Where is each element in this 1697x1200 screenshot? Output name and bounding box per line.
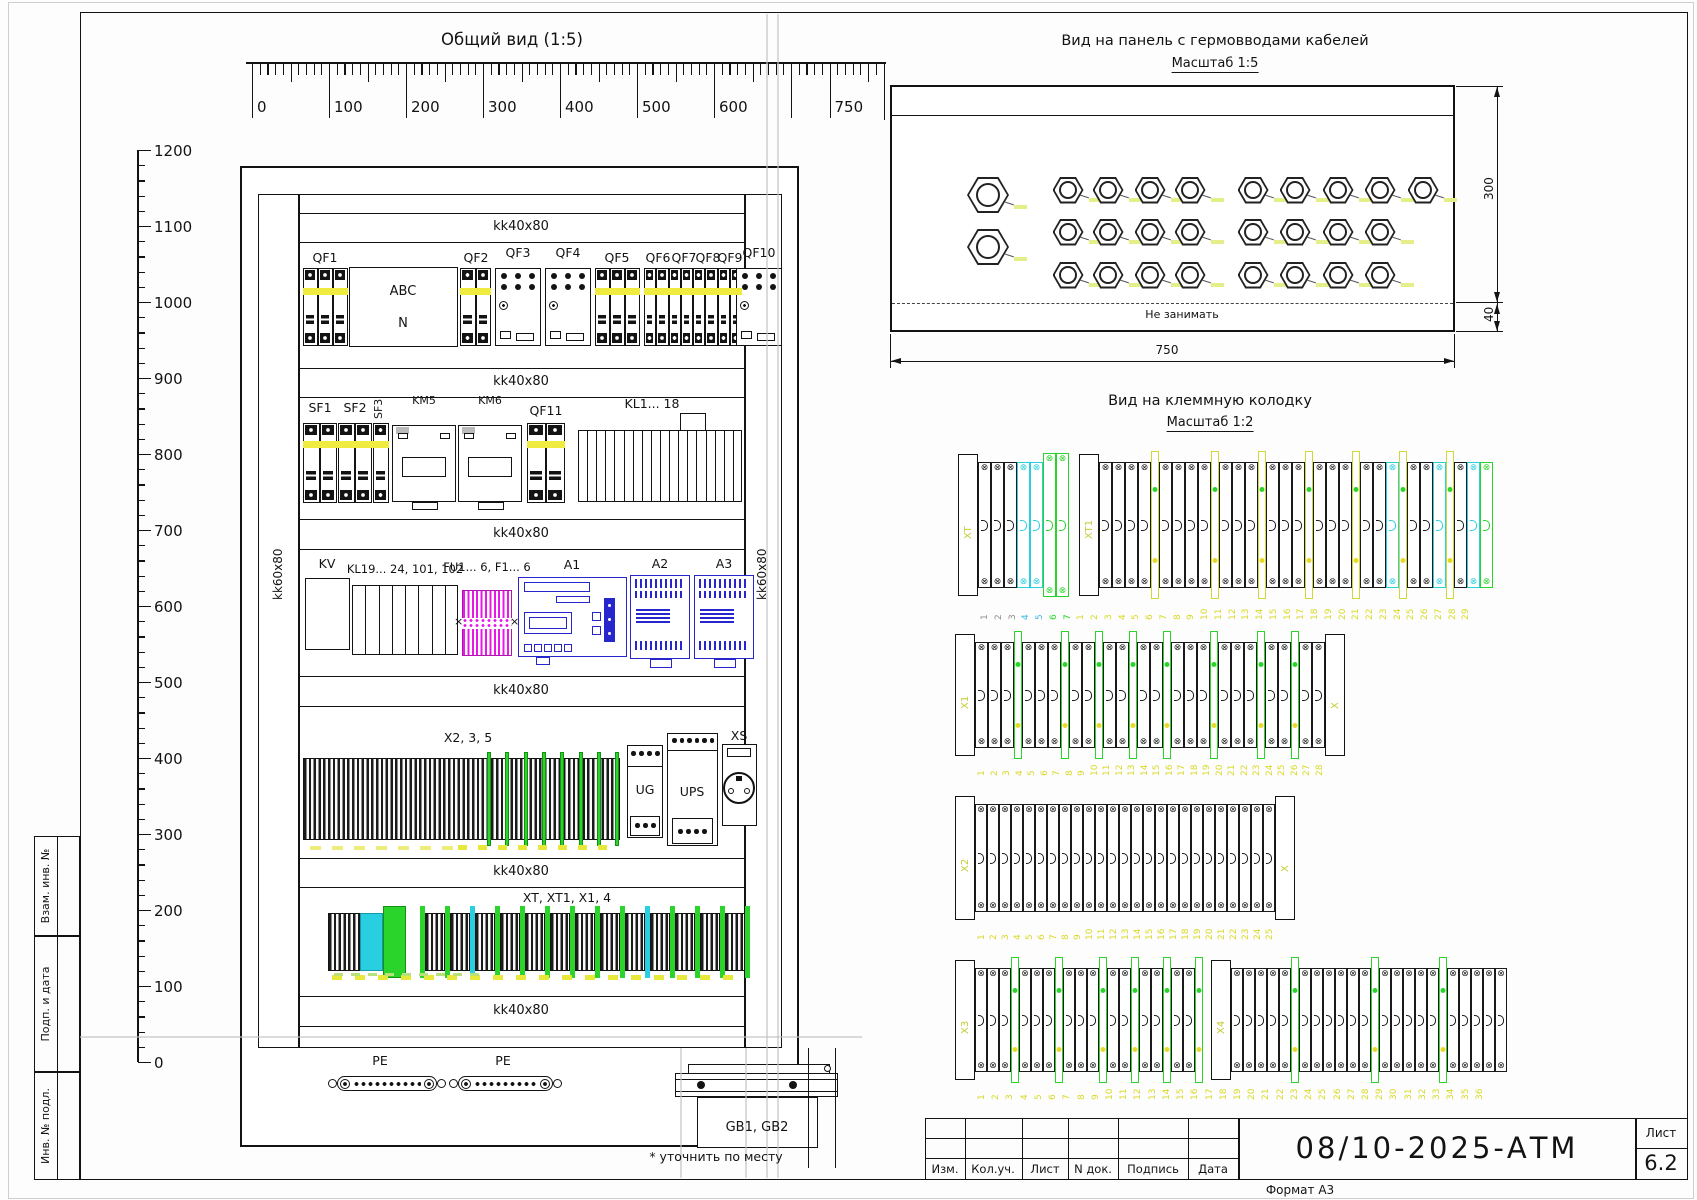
tb-col-data: Дата (1198, 1162, 1228, 1176)
keep-out-label: Не занимать (1145, 308, 1218, 321)
h-ruler-number: 400 (565, 98, 594, 116)
channel-label: kk40x80 (493, 1003, 549, 1018)
device-label-ug: UG (636, 782, 655, 797)
v-ruler-number: 0 (154, 1054, 164, 1072)
device-label-fu: FU1... 6, F1... 6 (443, 560, 530, 574)
fold-mark (80, 1036, 862, 1038)
sheet-word: Лист (1646, 1126, 1676, 1140)
v-ruler-number: 600 (154, 598, 183, 616)
dim-flange-label: 40 (1482, 307, 1496, 322)
channel-label: kk40x80 (493, 374, 549, 389)
gland-view-scale: Масштаб 1:5 (1172, 56, 1259, 73)
phase-marking-stripe (644, 288, 742, 295)
drawing-sheet: Взам. инв. № Подп. и дата Инв. № подл. О… (0, 0, 1697, 1200)
device-label-sf1: SF1 (308, 400, 331, 415)
h-ruler-number: 100 (334, 98, 363, 116)
fuse-end-mark: × (454, 615, 463, 628)
device-label-qf2: QF2 (464, 250, 489, 265)
channel-label-vertical: kk60x80 (755, 548, 769, 600)
sheet-number: 6.2 (1644, 1151, 1677, 1175)
channel-label: kk40x80 (493, 864, 549, 879)
terminal-group-label: X4 (1216, 1021, 1227, 1034)
device-label-x235: X2, 3, 5 (444, 730, 492, 745)
v-ruler-number: 300 (154, 826, 183, 844)
gland-view-title: Вид на панель с гермовводами кабелей (1061, 33, 1368, 49)
tb-col-izm: Изм. (931, 1162, 958, 1176)
fuse-end-mark: × (510, 615, 519, 628)
v-ruler-number: 200 (154, 902, 183, 920)
device-label-qf5: QF5 (605, 250, 630, 265)
device-label-qf10: QF10 (743, 245, 776, 260)
phase-label: ABC (390, 284, 417, 299)
device-label-km5: KM5 (412, 394, 436, 407)
stamp-divider (57, 1072, 58, 1180)
neutral-label: N (398, 316, 408, 331)
device-label-qf7: QF7 (672, 250, 697, 265)
device-label-qf3: QF3 (506, 245, 531, 260)
channel-label: kk40x80 (493, 219, 549, 234)
channel-label: kk40x80 (493, 526, 549, 541)
terminal-view-scale: Масштаб 1:2 (1167, 415, 1254, 432)
channel-label-vertical: kk60x80 (271, 548, 285, 600)
h-ruler-number: 200 (411, 98, 440, 116)
format-note: Формат А3 (1266, 1183, 1334, 1197)
h-ruler-number: 600 (719, 98, 748, 116)
stamp-label: Инв. № подл. (39, 1077, 52, 1175)
phase-marking-stripe (460, 288, 491, 295)
h-ruler-number: 300 (488, 98, 517, 116)
v-ruler-number: 1200 (154, 142, 192, 160)
stamp-divider (57, 936, 58, 1072)
fold-mark (777, 14, 779, 1178)
device-label-a2: A2 (652, 556, 669, 571)
phase-marking-stripe (527, 441, 565, 448)
footnote: * уточнить по месту (649, 1149, 782, 1164)
stamp-divider (57, 836, 58, 936)
v-ruler-number: 500 (154, 674, 183, 692)
device-label-qf9: QF9 (718, 250, 743, 265)
terminal-group-label: X2 (960, 859, 971, 872)
terminal-group-label: X3 (960, 1021, 971, 1034)
device-label-qf6: QF6 (646, 250, 671, 265)
terminal-group-label: XT (963, 526, 974, 539)
terminal-group-label: X (1330, 702, 1341, 709)
v-ruler-number: 1100 (154, 218, 192, 236)
device-label-ups: UPS (680, 784, 705, 799)
device-label-a3: A3 (716, 556, 733, 571)
general-view-title: Общий вид (1:5) (441, 30, 583, 49)
stamp-label: Взам. инв. № (39, 841, 52, 931)
device-label-km6: KM6 (478, 394, 502, 407)
terminal-view-title: Вид на клеммную колодку (1108, 393, 1312, 409)
phase-marking-stripe (303, 288, 348, 295)
device-label-kl1-18: KL1... 18 (625, 396, 680, 411)
device-label-a1: A1 (564, 557, 581, 572)
tb-col-koluch: Кол.уч. (971, 1162, 1014, 1176)
h-ruler-number: 750 (835, 98, 864, 116)
channel-label: kk40x80 (493, 683, 549, 698)
v-ruler-number: 900 (154, 370, 183, 388)
document-number: 08/10-2025-АТМ (1296, 1131, 1579, 1165)
h-ruler-number: 500 (642, 98, 671, 116)
tb-col-list: Лист (1030, 1162, 1059, 1176)
device-label-xs: XS (731, 728, 748, 743)
pe-bus-label: PE (372, 1053, 387, 1068)
v-ruler-number: 700 (154, 522, 183, 540)
device-label-qf4: QF4 (556, 245, 581, 260)
dim-width-label: 750 (1156, 343, 1179, 357)
device-label-sf2: SF2 (343, 400, 366, 415)
dim-height-label: 300 (1482, 177, 1496, 200)
v-ruler-number: 1000 (154, 294, 192, 312)
h-ruler-number: 0 (257, 98, 267, 116)
phase-marking-stripe (303, 441, 389, 448)
stamp-label: Подп. и дата (39, 941, 52, 1067)
battery-label: GB1, GB2 (726, 1120, 789, 1135)
pe-bus-label: PE (495, 1053, 510, 1068)
terminal-group-label: X (1280, 865, 1291, 872)
device-label-kv: KV (319, 556, 336, 571)
v-ruler-number: 400 (154, 750, 183, 768)
device-label-sf3: SF3 (372, 399, 385, 419)
device-label-qf11: QF11 (530, 403, 563, 418)
drawing-frame (80, 12, 1688, 1180)
device-label-qf1: QF1 (313, 250, 338, 265)
v-ruler-number: 100 (154, 978, 183, 996)
terminal-row-label: XT, XT1, X1, 4 (523, 890, 611, 905)
terminal-group-label: X1 (960, 696, 971, 709)
tb-col-ndok: N док. (1074, 1162, 1112, 1176)
tb-col-podpis: Подпись (1127, 1162, 1179, 1176)
terminal-group-label: XT1 (1084, 520, 1095, 539)
phase-marking-stripe (595, 288, 640, 295)
v-ruler-number: 800 (154, 446, 183, 464)
